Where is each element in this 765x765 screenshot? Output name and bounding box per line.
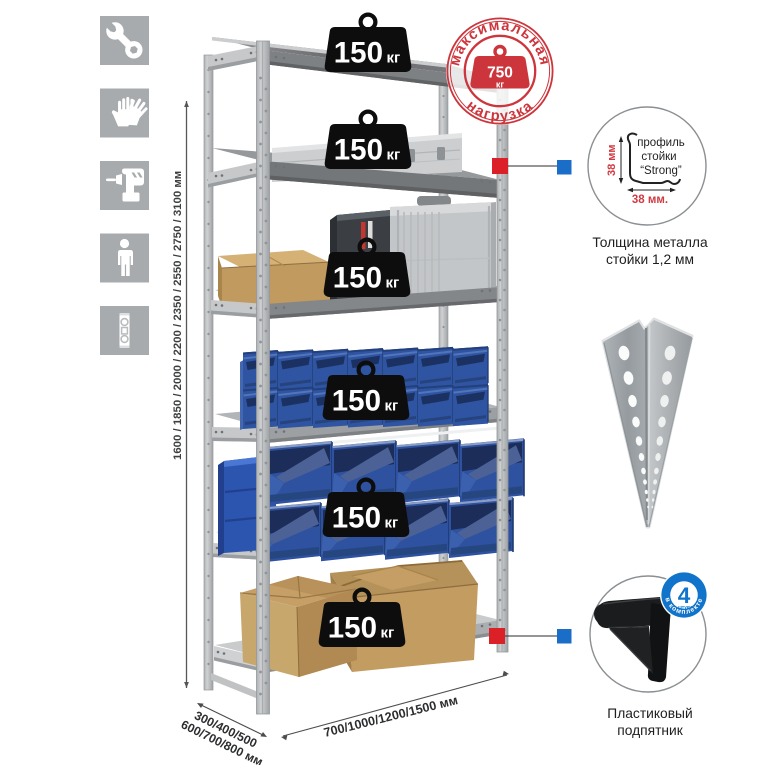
- svg-text:Пластиковый: Пластиковый: [607, 706, 692, 721]
- svg-text:штуки: штуки: [678, 605, 692, 610]
- svg-text:1600 / 1850 / 2000 / 2200 / 23: 1600 / 1850 / 2000 / 2200 / 2350 / 2550 …: [172, 171, 184, 460]
- svg-text:стойки: стойки: [641, 151, 676, 163]
- svg-text:38 мм: 38 мм: [606, 144, 618, 176]
- svg-text:стойки 1,2 мм: стойки 1,2 мм: [606, 252, 694, 267]
- svg-text:профиль: профиль: [637, 137, 685, 149]
- svg-text:подпятник: подпятник: [617, 723, 683, 738]
- svg-text:“Strong”: “Strong”: [640, 165, 682, 177]
- svg-text:Толщина металла: Толщина металла: [592, 235, 708, 250]
- svg-text:38 мм.: 38 мм.: [632, 194, 668, 206]
- svg-text:кг: кг: [496, 80, 505, 90]
